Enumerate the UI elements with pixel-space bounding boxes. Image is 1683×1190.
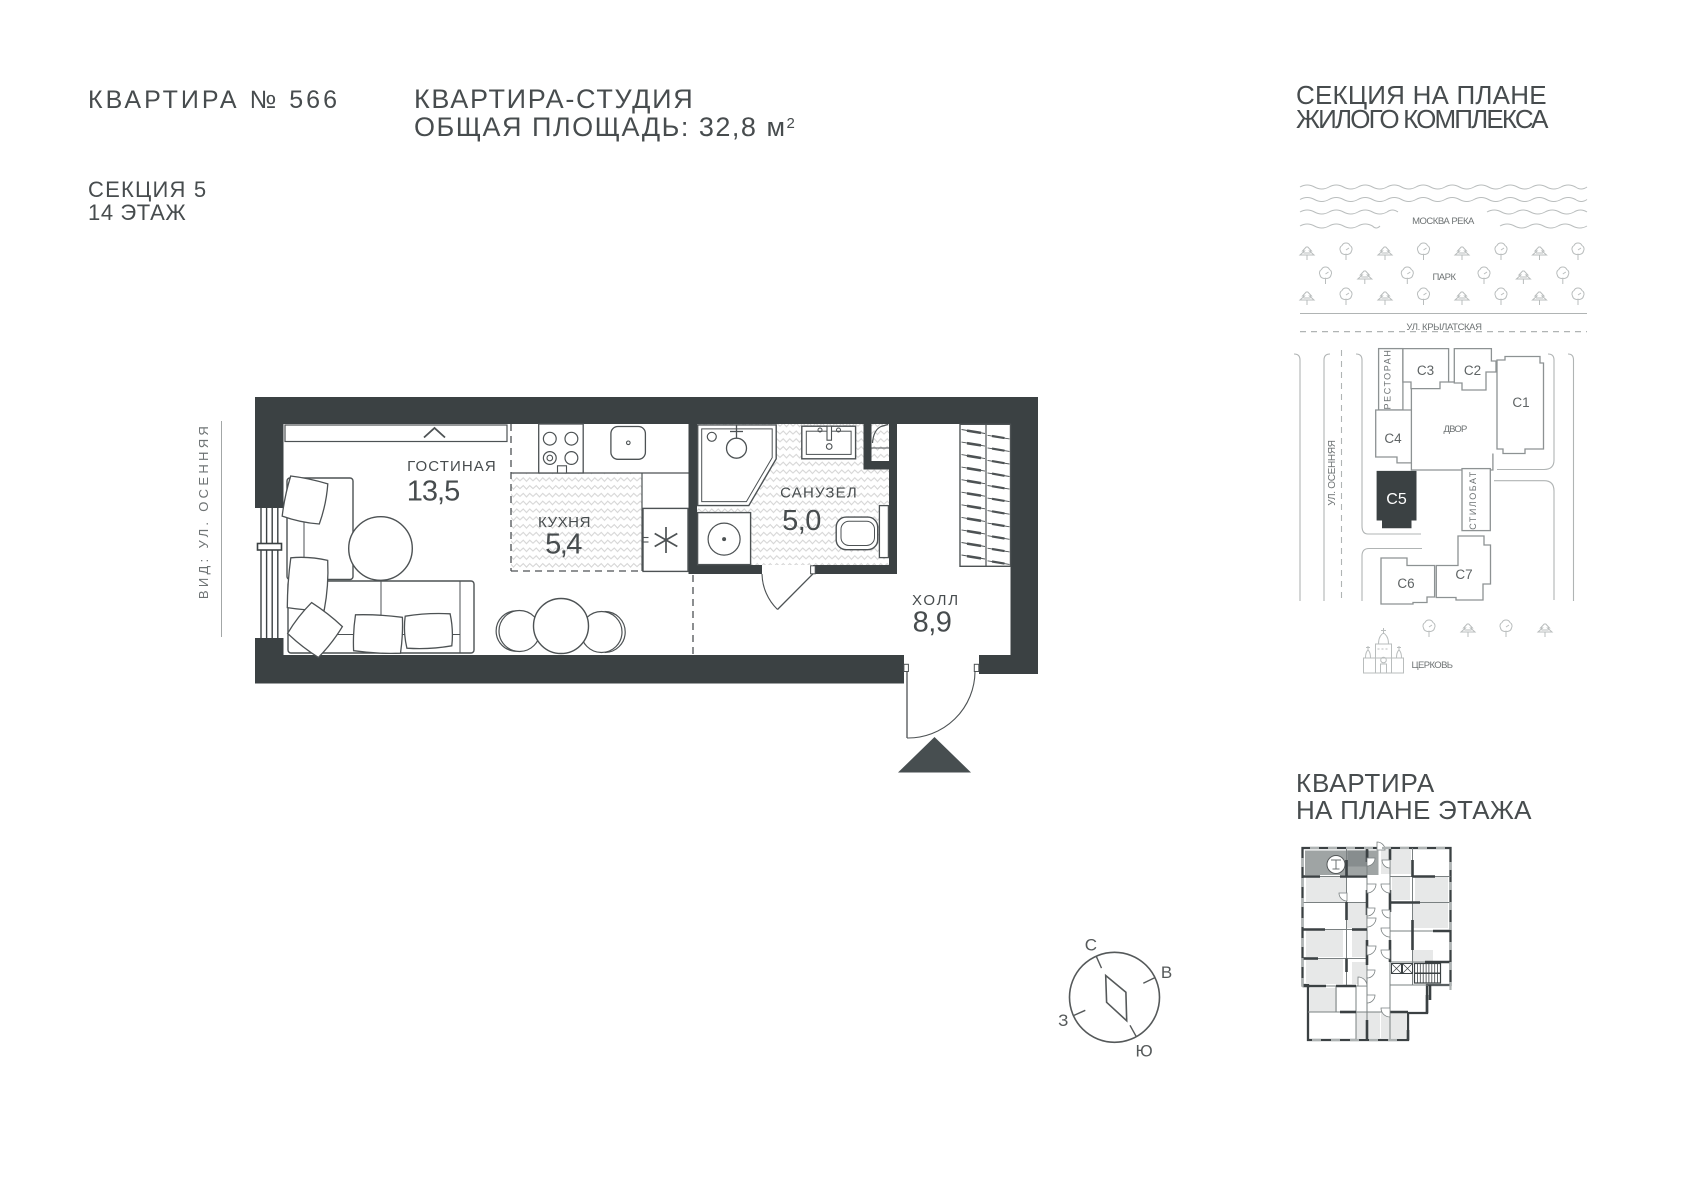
svg-text:КВАРТИРА № 566: КВАРТИРА № 566	[88, 86, 340, 114]
svg-text:5,0: 5,0	[782, 505, 821, 537]
svg-text:С6: С6	[1397, 576, 1414, 591]
svg-text:НА ПЛАНЕ ЭТАЖА: НА ПЛАНЕ ЭТАЖА	[1296, 795, 1532, 825]
svg-text:САНУЗЕЛ: САНУЗЕЛ	[780, 485, 858, 502]
svg-text:ГОСТИНАЯ: ГОСТИНАЯ	[407, 458, 497, 475]
svg-text:5,4: 5,4	[545, 529, 582, 561]
svg-text:С: С	[1085, 935, 1097, 954]
svg-text:СТИЛОБАТ: СТИЛОБАТ	[1468, 470, 1478, 530]
svg-text:РЕСТОРАН: РЕСТОРАН	[1383, 348, 1393, 409]
svg-text:С1: С1	[1512, 395, 1529, 410]
svg-text:УЛ. ОСЕННЯЯ: УЛ. ОСЕННЯЯ	[1327, 440, 1338, 505]
svg-text:13,5: 13,5	[407, 476, 459, 508]
svg-text:8,9: 8,9	[913, 607, 952, 639]
svg-text:ОБЩАЯ ПЛОЩАДЬ: 32,8 м2: ОБЩАЯ ПЛОЩАДЬ: 32,8 м2	[414, 112, 796, 142]
svg-text:С4: С4	[1384, 431, 1402, 446]
svg-text:З: З	[1058, 1011, 1068, 1030]
svg-text:С3: С3	[1417, 363, 1434, 378]
svg-text:КВАРТИРА: КВАРТИРА	[1296, 768, 1435, 798]
svg-text:С5: С5	[1386, 491, 1407, 508]
svg-text:ДВОР: ДВОР	[1444, 424, 1467, 435]
svg-text:Ю: Ю	[1136, 1042, 1153, 1061]
svg-text:С7: С7	[1455, 567, 1472, 582]
svg-text:СЕКЦИЯ 5: СЕКЦИЯ 5	[88, 177, 207, 202]
svg-text:МОСКВА РЕКА: МОСКВА РЕКА	[1412, 216, 1475, 227]
svg-text:ЖИЛОГО КОМПЛЕКСА: ЖИЛОГО КОМПЛЕКСА	[1296, 104, 1549, 134]
svg-text:В: В	[1161, 963, 1172, 982]
svg-text:14 ЭТАЖ: 14 ЭТАЖ	[88, 200, 186, 225]
svg-text:КВАРТИРА-СТУДИЯ: КВАРТИРА-СТУДИЯ	[414, 84, 694, 114]
svg-text:ЦЕРКОВЬ: ЦЕРКОВЬ	[1412, 660, 1453, 671]
svg-text:ВИД: УЛ. ОСЕННЯЯ: ВИД: УЛ. ОСЕННЯЯ	[196, 423, 211, 599]
svg-text:ПАРК: ПАРК	[1432, 272, 1456, 283]
svg-text:С2: С2	[1464, 363, 1481, 378]
